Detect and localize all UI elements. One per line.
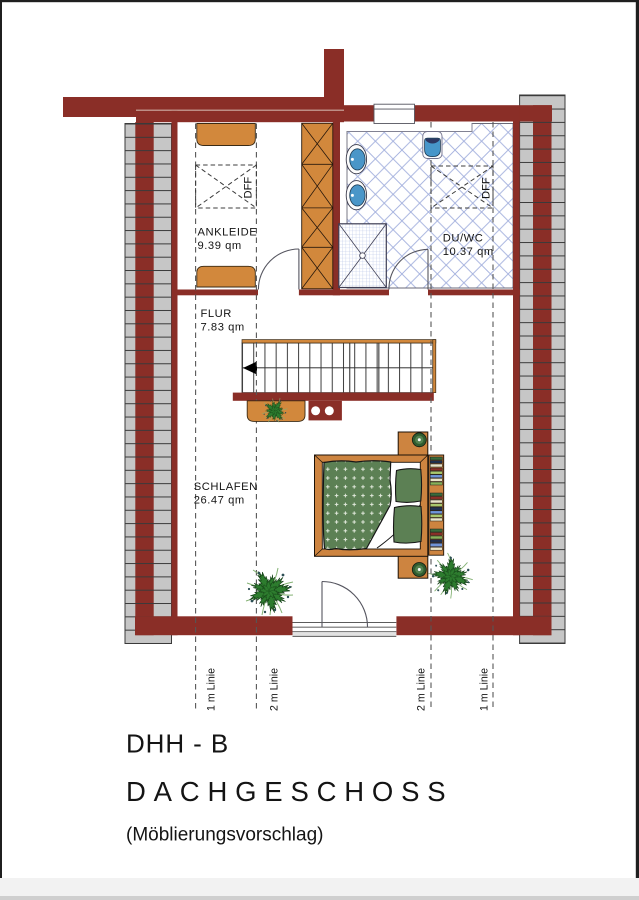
svg-text:1 m Linie: 1 m Linie bbox=[479, 668, 491, 711]
svg-text:26.47 qm: 26.47 qm bbox=[194, 495, 245, 507]
svg-text:DFF: DFF bbox=[481, 177, 493, 199]
svg-text:DHH - B: DHH - B bbox=[126, 729, 229, 759]
svg-text:7.83 qm: 7.83 qm bbox=[201, 322, 245, 334]
svg-text:2 m Linie: 2 m Linie bbox=[416, 668, 428, 711]
svg-text:DACHGESCHOSS: DACHGESCHOSS bbox=[126, 776, 453, 807]
svg-text:DFF: DFF bbox=[243, 177, 255, 199]
svg-text:DU/WC: DU/WC bbox=[443, 233, 484, 245]
svg-text:FLUR: FLUR bbox=[201, 308, 232, 320]
svg-text:9.39 qm: 9.39 qm bbox=[198, 240, 242, 252]
svg-text:2 m Linie: 2 m Linie bbox=[269, 668, 281, 711]
svg-text:10.37 qm: 10.37 qm bbox=[443, 246, 494, 258]
svg-text:1 m Linie: 1 m Linie bbox=[206, 668, 218, 711]
svg-text:ANKLEIDE: ANKLEIDE bbox=[198, 227, 258, 239]
svg-text:(Möblierungsvorschlag): (Möblierungsvorschlag) bbox=[126, 825, 323, 846]
svg-text:SCHLAFEN: SCHLAFEN bbox=[194, 481, 258, 493]
